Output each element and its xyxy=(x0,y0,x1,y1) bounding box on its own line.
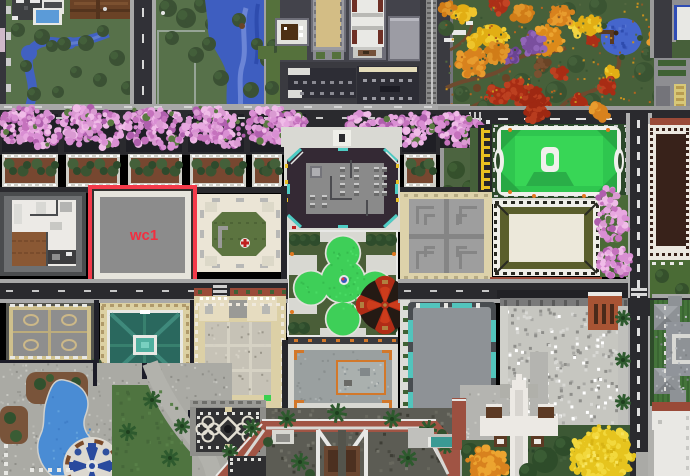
svg-text:wc1: wc1 xyxy=(129,227,158,244)
